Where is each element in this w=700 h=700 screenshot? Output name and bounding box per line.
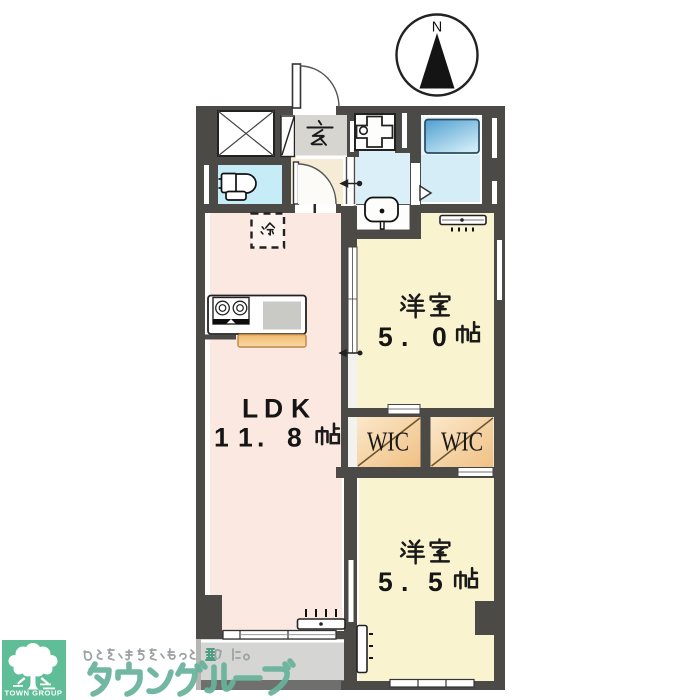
svg-text:WIC: WIC xyxy=(367,427,409,457)
svg-text:N: N xyxy=(432,20,442,36)
svg-text:WIC: WIC xyxy=(441,427,483,457)
svg-text:11.8: 11.8 xyxy=(214,423,302,453)
svg-text:LDK: LDK xyxy=(242,394,310,424)
svg-text:TOWN GROUP: TOWN GROUP xyxy=(4,689,62,698)
